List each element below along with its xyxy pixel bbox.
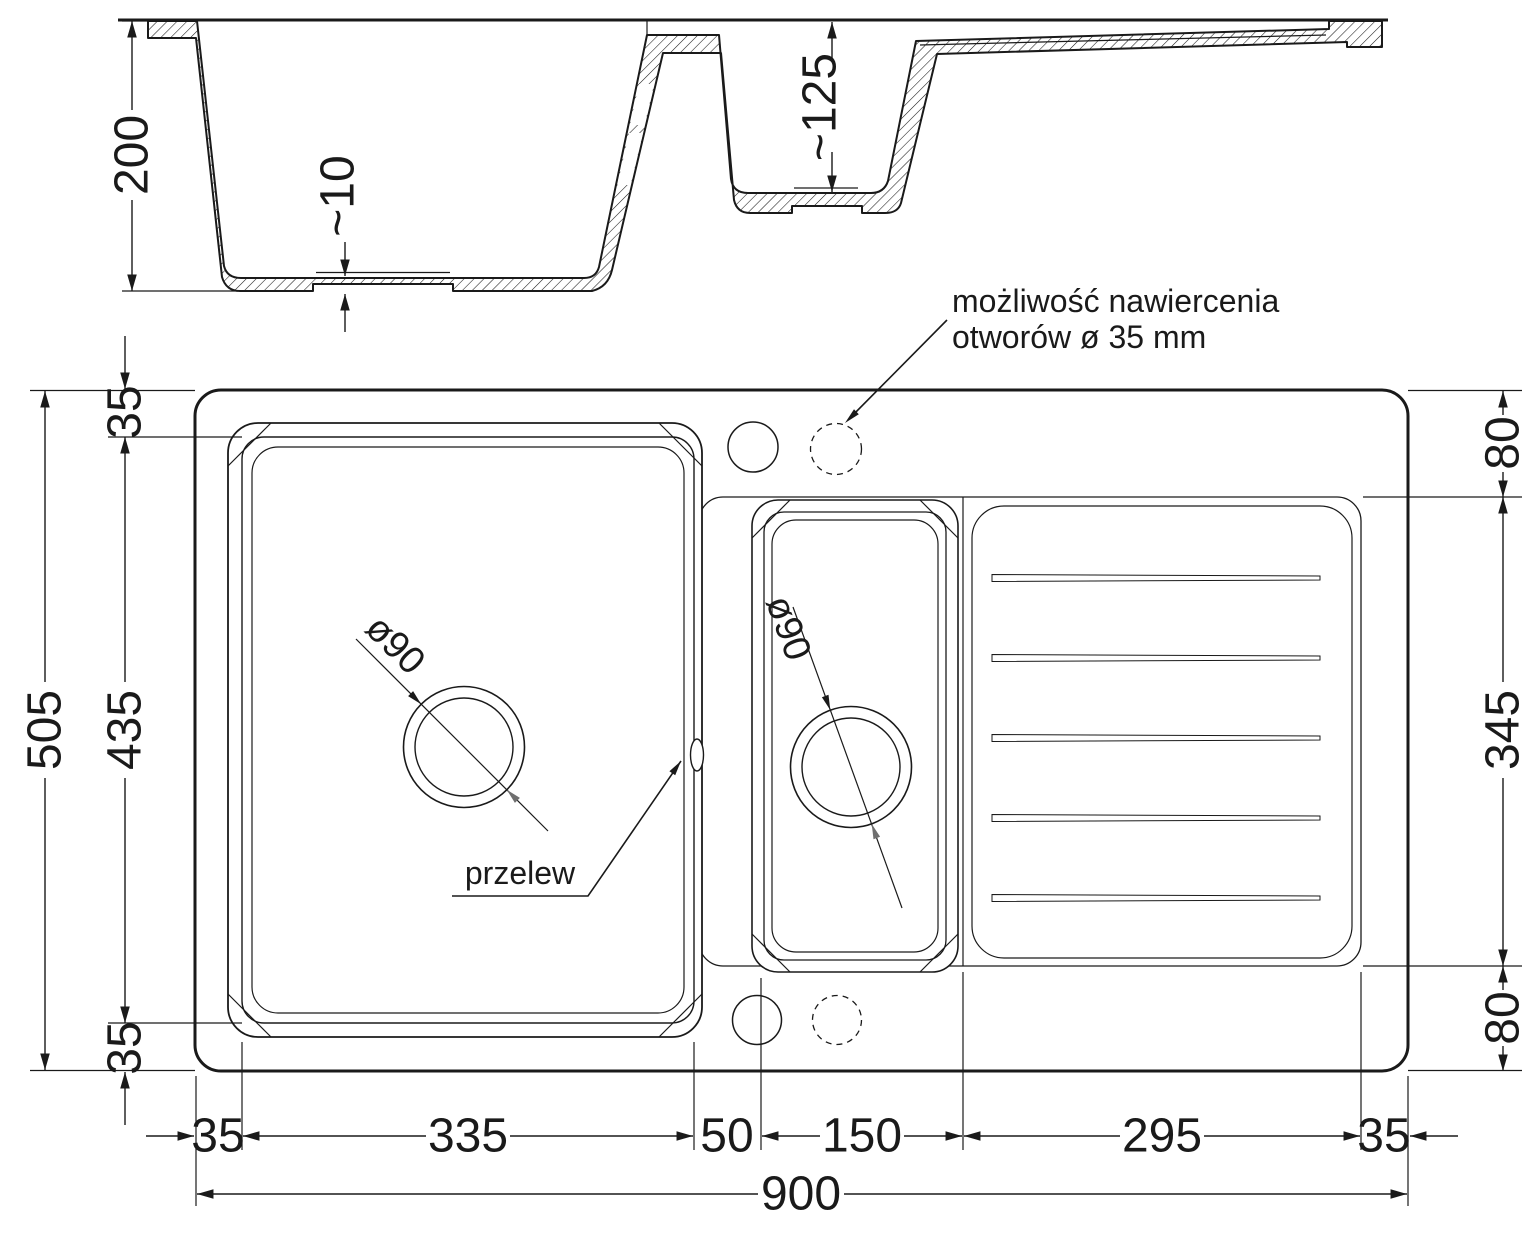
optional-drill-hole-dashed bbox=[811, 424, 862, 475]
faucet-hole bbox=[733, 996, 782, 1045]
dim-margin-right-label: 35 bbox=[1357, 1110, 1410, 1163]
dim-small-bowl-width-label: 150 bbox=[822, 1110, 902, 1163]
groove-line bbox=[992, 895, 1320, 902]
dim-margin-left-label: 35 bbox=[191, 1110, 244, 1163]
dim-floor-thickness: ~10 bbox=[312, 155, 365, 332]
dim-margin-left: 35 bbox=[146, 1110, 245, 1163]
optional-drill-hole-dashed bbox=[813, 996, 862, 1045]
dim-deck-middle: 345 bbox=[1477, 497, 1530, 966]
dim-margin-bottom: 35 bbox=[99, 1021, 152, 1125]
dim-bowl-inner-depth-label: 435 bbox=[99, 690, 152, 770]
groove-line bbox=[992, 815, 1320, 822]
dim-small-bowl-depth: ~125 bbox=[794, 22, 847, 192]
dim-deck-top: 80 bbox=[1477, 391, 1530, 497]
dim-bowl-inner-depth: 435 bbox=[99, 437, 152, 1023]
groove-line bbox=[992, 575, 1320, 582]
dim-floor-thickness-label: ~10 bbox=[312, 155, 365, 236]
dim-margin-right: 35 bbox=[1357, 1110, 1458, 1163]
drainboard-panel bbox=[972, 506, 1352, 958]
dim-deck-bottom: 80 bbox=[1477, 966, 1530, 1071]
dim-total-width: 900 bbox=[197, 1168, 1407, 1221]
overflow-label: przelew bbox=[465, 855, 576, 891]
dim-margin-bottom-label: 35 bbox=[99, 1021, 152, 1074]
groove-line bbox=[992, 655, 1320, 662]
small-bowl: ø90 bbox=[752, 500, 958, 972]
main-bowl: ø90 bbox=[228, 423, 702, 1037]
overflow-slot bbox=[691, 739, 704, 771]
dim-main-bowl-width-label: 335 bbox=[428, 1110, 508, 1163]
dim-deck-top-label: 80 bbox=[1477, 416, 1530, 469]
dim-deck-bottom-label: 80 bbox=[1477, 991, 1530, 1044]
drill-note-line1: możliwość nawiercenia bbox=[952, 283, 1279, 319]
groove-line bbox=[992, 735, 1320, 742]
drill-note-line2: otworów ø 35 mm bbox=[952, 319, 1206, 355]
dim-total-depth: 505 bbox=[19, 391, 72, 1070]
dim-drainboard-width-label: 295 bbox=[1122, 1110, 1202, 1163]
dim-divider-gap: 50 bbox=[700, 1110, 753, 1163]
dim-margin-top-label: 35 bbox=[99, 385, 152, 438]
dim-small-bowl-depth-label: ~125 bbox=[794, 53, 847, 161]
dim-depth-total-label: 200 bbox=[106, 115, 159, 195]
plan-view: ø90 ø90 przelew bbox=[195, 283, 1408, 1071]
dim-divider-gap-label: 50 bbox=[700, 1110, 753, 1163]
dim-total-width-label: 900 bbox=[761, 1168, 841, 1221]
dim-drainboard-width: 295 bbox=[964, 1110, 1360, 1163]
dim-deck-middle-label: 345 bbox=[1477, 690, 1530, 770]
dim-margin-top: 35 bbox=[99, 336, 152, 439]
sink-technical-drawing: 200 ~10 ~125 bbox=[0, 0, 1534, 1242]
faucet-hole bbox=[728, 422, 778, 472]
dim-total-depth-label: 505 bbox=[19, 690, 72, 770]
dim-small-bowl-width: 150 bbox=[762, 1110, 962, 1163]
dim-main-bowl-width: 335 bbox=[243, 1110, 693, 1163]
drawing-canvas: 200 ~10 ~125 bbox=[0, 0, 1534, 1242]
